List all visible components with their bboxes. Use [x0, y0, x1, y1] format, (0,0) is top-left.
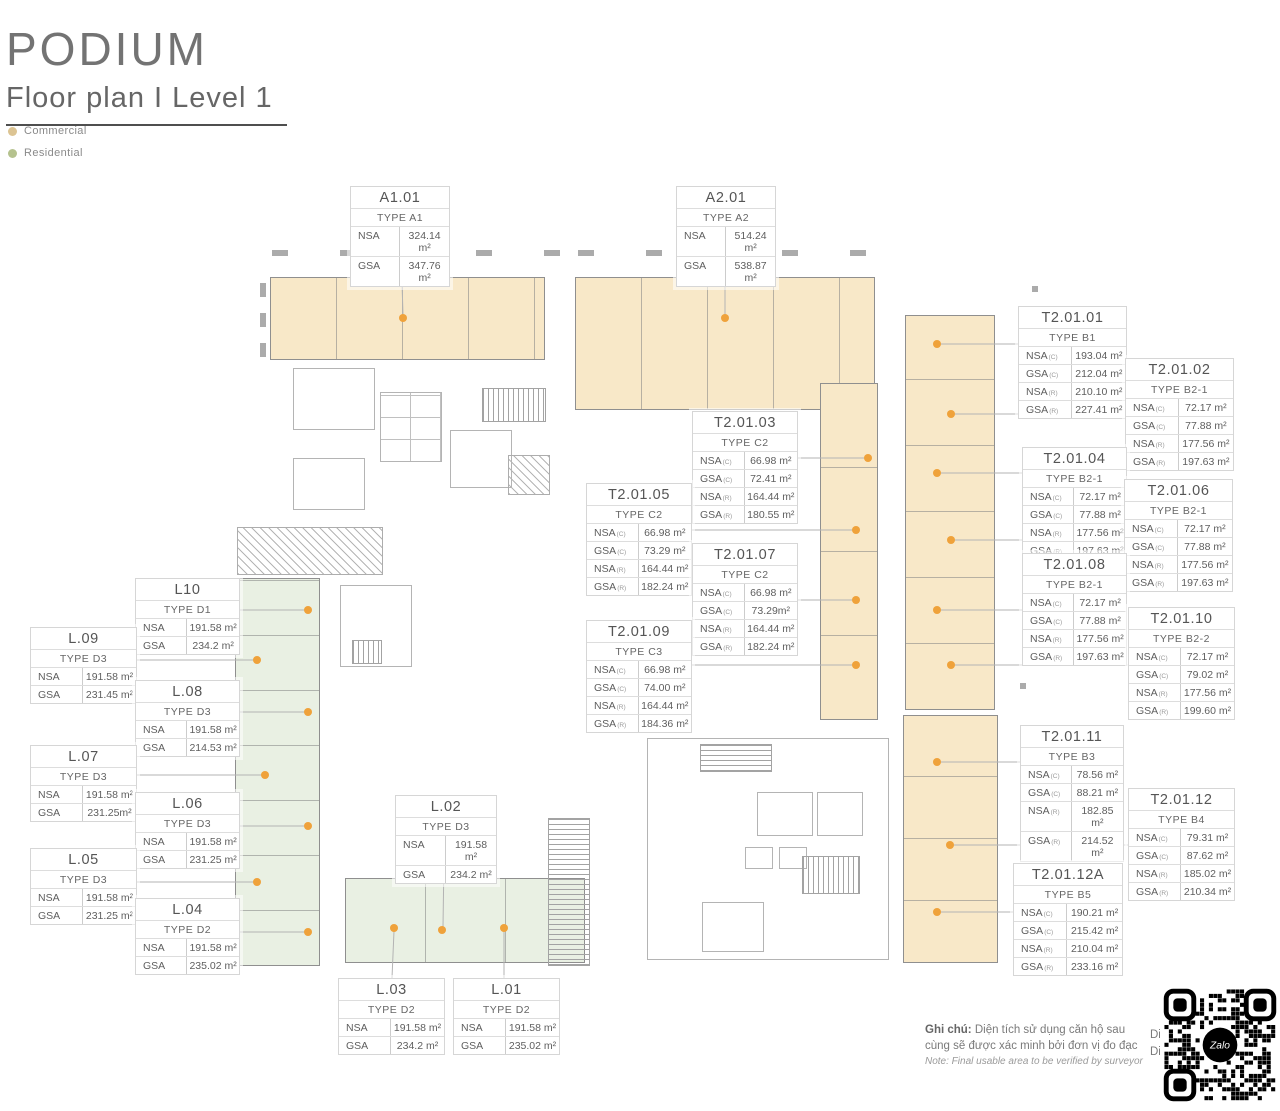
area-value: 227.41 m² — [1072, 401, 1126, 418]
area-value: 66.98 m² — [745, 584, 797, 601]
area-value: 177.56 m² — [1178, 556, 1232, 573]
legend-label: Commercial — [24, 125, 87, 137]
area-value: 66.98 m² — [639, 524, 691, 541]
area-label: NSA — [136, 721, 187, 738]
area-value: 191.58 m² — [506, 1019, 559, 1036]
area-row: GSA(R)182.24 m² — [693, 638, 797, 655]
area-scope: (R) — [1053, 655, 1062, 662]
page-subtitle: Floor plan I Level 1 — [6, 72, 287, 126]
area-scope: (C) — [1159, 655, 1168, 662]
qr-pattern: Zalo — [1160, 984, 1280, 1106]
unit-tables: A1.01TYPE A1NSA324.14 m²GSA347.76 m²A2.0… — [0, 0, 1280, 1106]
unit-table-T2.01.05: T2.01.05TYPE C2NSA(C)66.98 m²GSA(C)73.29… — [586, 483, 692, 596]
area-scope: (C) — [1053, 495, 1062, 502]
area-label: GSA(C) — [693, 602, 745, 619]
area-value: 164.44 m² — [745, 620, 797, 637]
area-scope: (R) — [723, 513, 732, 520]
area-scope: (C) — [617, 668, 626, 675]
area-label: NSA(R) — [1021, 802, 1072, 831]
area-value: 231.25 m² — [83, 907, 136, 924]
area-row: GSA235.02 m² — [136, 957, 239, 974]
area-value: 191.58 m² — [83, 889, 136, 906]
area-scope: (R) — [1159, 691, 1168, 698]
area-scope: (C) — [1044, 911, 1053, 918]
area-row: GSA(R)214.52 m² — [1021, 832, 1123, 861]
area-value: 77.88 m² — [1178, 538, 1232, 555]
area-label: GSA(R) — [1014, 958, 1067, 975]
area-row: NSA(R)164.44 m² — [693, 620, 797, 638]
area-value: 210.04 m² — [1067, 940, 1122, 957]
area-row: NSA(C)78.56 m² — [1021, 766, 1123, 784]
area-scope: (R) — [1044, 947, 1053, 954]
area-row: NSA(C)72.17 m² — [1126, 399, 1233, 417]
area-value: 72.17 m² — [1181, 648, 1234, 665]
area-value: 79.02 m² — [1181, 666, 1234, 683]
unit-type: TYPE D2 — [339, 1001, 444, 1019]
unit-type: TYPE D3 — [31, 871, 136, 889]
area-scope: (C) — [1049, 372, 1058, 379]
area-label: NSA — [136, 833, 187, 850]
zalo-qr-code: Zalo — [1160, 984, 1280, 1106]
unit-table-T2.01.02: T2.01.02TYPE B2-1NSA(C)72.17 m²GSA(C)77.… — [1125, 358, 1234, 471]
area-label: NSA(C) — [693, 452, 745, 469]
area-label: GSA(C) — [1019, 365, 1072, 382]
area-value: 88.21 m² — [1072, 784, 1123, 801]
area-label: GSA — [351, 257, 400, 286]
area-row: NSA(C)72.17 m² — [1023, 488, 1126, 506]
area-row: GSA(C)77.88 m² — [1125, 538, 1232, 556]
area-scope: (R) — [1159, 890, 1168, 897]
unit-type: TYPE D3 — [31, 650, 136, 668]
area-value: 72.17 m² — [1074, 488, 1126, 505]
unit-id: T2.01.12A — [1014, 864, 1122, 886]
unit-id: A2.01 — [677, 187, 775, 209]
area-value: 73.29m² — [745, 602, 797, 619]
area-row: NSA(R)182.85 m² — [1021, 802, 1123, 832]
area-scope: (R) — [723, 627, 732, 634]
area-value: 212.04 m² — [1072, 365, 1126, 382]
area-label: NSA(C) — [587, 524, 639, 541]
area-value: 324.14 m² — [400, 227, 449, 256]
area-label: NSA(C) — [1129, 648, 1181, 665]
area-value: 191.58 m² — [446, 836, 496, 865]
unit-table-T2.01.07: T2.01.07TYPE C2NSA(C)66.98 m²GSA(C)73.29… — [692, 543, 798, 656]
area-label: GSA(C) — [693, 470, 745, 487]
area-row: NSA(C)66.98 m² — [587, 524, 691, 542]
area-row: GSA(C)212.04 m² — [1019, 365, 1126, 383]
area-label: NSA(R) — [693, 620, 745, 637]
area-label: NSA(R) — [587, 560, 639, 577]
area-scope: (C) — [1159, 836, 1168, 843]
unit-table-L.01: L.01TYPE D2NSA191.58 m²GSA235.02 m² — [453, 978, 560, 1055]
area-row: GSA(C)87.62 m² — [1129, 847, 1234, 865]
area-value: 184.36 m² — [639, 715, 691, 732]
footnote: Ghi chú: Diện tích sử dụng căn hộ sau cù… — [925, 1023, 1153, 1069]
area-value: 191.58 m² — [187, 619, 239, 636]
area-label: NSA(C) — [587, 661, 639, 678]
area-value: 191.58 m² — [83, 668, 136, 685]
page-title: PODIUM — [6, 26, 287, 72]
area-row: GSA214.53 m² — [136, 739, 239, 756]
area-scope: (C) — [617, 531, 626, 538]
area-row: GSA(C)74.00 m² — [587, 679, 691, 697]
area-label: NSA(R) — [1019, 383, 1072, 400]
unit-id: L.06 — [136, 793, 239, 815]
residential-dot-icon — [8, 149, 17, 158]
area-label: GSA(C) — [1125, 538, 1178, 555]
area-label: NSA — [454, 1019, 506, 1036]
unit-table-L10: L10TYPE D1NSA191.58 m²GSA234.2 m² — [135, 578, 240, 655]
area-scope: (R) — [1156, 460, 1165, 467]
area-scope: (C) — [1155, 527, 1164, 534]
unit-type: TYPE D3 — [136, 815, 239, 833]
area-label: NSA(R) — [1125, 556, 1178, 573]
unit-id: T2.01.08 — [1023, 554, 1126, 576]
area-row: GSA(R)199.60 m² — [1129, 702, 1234, 719]
area-row: GSA(R)197.63 m² — [1023, 648, 1126, 665]
unit-type: TYPE B4 — [1129, 811, 1234, 829]
area-row: NSA324.14 m² — [351, 227, 449, 257]
area-label: NSA(R) — [1023, 630, 1074, 647]
area-row: NSA191.58 m² — [339, 1019, 444, 1037]
area-value: 191.58 m² — [391, 1019, 444, 1036]
area-value: 180.55 m² — [745, 506, 797, 523]
area-value: 177.56 m² — [1074, 630, 1126, 647]
area-value: 214.53 m² — [187, 739, 239, 756]
area-row: NSA(R)177.56 m² — [1023, 630, 1126, 648]
area-scope: (C) — [723, 609, 732, 616]
area-row: GSA(R)197.63 m² — [1126, 453, 1233, 470]
unit-id: L10 — [136, 579, 239, 601]
area-label: GSA(R) — [1021, 832, 1072, 861]
area-row: GSA(R)210.34 m² — [1129, 883, 1234, 900]
unit-type: TYPE C3 — [587, 643, 691, 661]
area-value: 233.16 m² — [1067, 958, 1122, 975]
unit-id: L.08 — [136, 681, 239, 703]
unit-table-L.04: L.04TYPE D2NSA191.58 m²GSA235.02 m² — [135, 898, 240, 975]
area-value: 231.25m² — [83, 804, 136, 821]
unit-table-T2.01.12: T2.01.12TYPE B4NSA(C)79.31 m²GSA(C)87.62… — [1128, 788, 1235, 901]
area-value: 190.21 m² — [1067, 904, 1122, 921]
unit-id: L.03 — [339, 979, 444, 1001]
area-label: GSA — [31, 907, 83, 924]
area-value: 66.98 m² — [745, 452, 797, 469]
area-row: NSA191.58 m² — [136, 833, 239, 851]
area-value: 73.29 m² — [639, 542, 691, 559]
area-row: GSA231.25 m² — [31, 907, 136, 924]
area-value: 234.2 m² — [187, 637, 239, 654]
unit-type: TYPE D3 — [31, 768, 136, 786]
area-value: 72.17 m² — [1179, 399, 1233, 416]
area-row: NSA(C)190.21 m² — [1014, 904, 1122, 922]
area-row: NSA(R)210.04 m² — [1014, 940, 1122, 958]
area-row: NSA191.58 m² — [31, 889, 136, 907]
area-row: NSA(C)72.17 m² — [1125, 520, 1232, 538]
area-row: GSA(C)77.88 m² — [1023, 506, 1126, 524]
area-label: GSA(C) — [1126, 417, 1179, 434]
area-value: 182.24 m² — [639, 578, 691, 595]
area-value: 347.76 m² — [400, 257, 449, 286]
area-scope: (R) — [1049, 390, 1058, 397]
area-value: 191.58 m² — [187, 939, 239, 956]
area-value: 177.56 m² — [1074, 524, 1126, 541]
area-scope: (R) — [1159, 872, 1168, 879]
area-label: NSA(R) — [1023, 524, 1074, 541]
footnote-label: Ghi chú: — [925, 1024, 972, 1036]
area-scope: (R) — [1051, 809, 1060, 816]
area-row: NSA(R)177.56 m² — [1129, 684, 1234, 702]
area-scope: (C) — [1159, 673, 1168, 680]
area-value: 177.56 m² — [1181, 684, 1234, 701]
area-scope: (C) — [723, 459, 732, 466]
area-row: NSA(C)66.98 m² — [693, 584, 797, 602]
area-label: GSA(C) — [1129, 666, 1181, 683]
area-value: 214.52 m² — [1072, 832, 1123, 861]
area-row: NSA(R)164.44 m² — [587, 560, 691, 578]
area-scope: (R) — [723, 645, 732, 652]
area-row: GSA(R)197.63 m² — [1125, 574, 1232, 591]
area-label: NSA — [136, 619, 187, 636]
area-row: NSA191.58 m² — [136, 939, 239, 957]
area-row: GSA(C)72.41 m² — [693, 470, 797, 488]
area-label: GSA(R) — [1125, 574, 1178, 591]
area-scope: (R) — [1053, 531, 1062, 538]
area-label: GSA — [136, 637, 187, 654]
area-row: GSA347.76 m² — [351, 257, 449, 286]
unit-table-L.09: L.09TYPE D3NSA191.58 m²GSA231.45 m² — [30, 627, 137, 704]
unit-type: TYPE B5 — [1014, 886, 1122, 904]
area-label: GSA(C) — [1023, 506, 1074, 523]
area-row: NSA191.58 m² — [136, 619, 239, 637]
area-label: NSA(C) — [1023, 488, 1074, 505]
area-row: NSA(C)66.98 m² — [587, 661, 691, 679]
unit-type: TYPE D2 — [136, 921, 239, 939]
unit-type: TYPE B2-2 — [1129, 630, 1234, 648]
unit-id: T2.01.04 — [1023, 448, 1126, 470]
area-row: GSA234.2 m² — [339, 1037, 444, 1054]
area-scope: (C) — [723, 591, 732, 598]
area-label: GSA(R) — [1129, 702, 1181, 719]
area-scope: (C) — [1051, 773, 1060, 780]
unit-type: TYPE C2 — [693, 566, 797, 584]
area-value: 193.04 m² — [1072, 347, 1126, 364]
area-label: NSA(C) — [1014, 904, 1067, 921]
area-value: 185.02 m² — [1181, 865, 1234, 882]
area-row: NSA191.58 m² — [31, 786, 136, 804]
unit-table-L.07: L.07TYPE D3NSA191.58 m²GSA231.25m² — [30, 745, 137, 822]
area-label: GSA — [31, 804, 83, 821]
unit-id: T2.01.03 — [693, 412, 797, 434]
area-scope: (R) — [1044, 965, 1053, 972]
area-row: NSA(C)193.04 m² — [1019, 347, 1126, 365]
area-row: GSA(R)233.16 m² — [1014, 958, 1122, 975]
area-value: 191.58 m² — [187, 833, 239, 850]
area-row: GSA538.87 m² — [677, 257, 775, 286]
area-row: NSA(C)72.17 m² — [1129, 648, 1234, 666]
area-scope: (C) — [1159, 854, 1168, 861]
area-scope: (C) — [1156, 406, 1165, 413]
area-row: NSA(R)210.10 m² — [1019, 383, 1126, 401]
area-value: 66.98 m² — [639, 661, 691, 678]
area-label: GSA — [396, 866, 446, 883]
area-label: GSA(R) — [693, 506, 745, 523]
area-label: NSA — [31, 889, 83, 906]
unit-id: T2.01.09 — [587, 621, 691, 643]
area-label: GSA(C) — [1014, 922, 1067, 939]
area-label: NSA(C) — [1126, 399, 1179, 416]
area-label: NSA(R) — [1129, 865, 1181, 882]
area-label: NSA(R) — [1126, 435, 1179, 452]
area-label: NSA — [677, 227, 726, 256]
area-label: GSA — [677, 257, 726, 286]
unit-id: T2.01.05 — [587, 484, 691, 506]
legend-label: Residential — [24, 147, 83, 159]
area-row: GSA(C)77.88 m² — [1126, 417, 1233, 435]
unit-table-T2.01.08: T2.01.08TYPE B2-1NSA(C)72.17 m²GSA(C)77.… — [1022, 553, 1127, 666]
area-scope: (R) — [617, 585, 626, 592]
area-value: 191.58 m² — [187, 721, 239, 738]
unit-id: A1.01 — [351, 187, 449, 209]
unit-type: TYPE B2-1 — [1023, 576, 1126, 594]
area-label: NSA — [31, 786, 83, 803]
area-label: NSA — [136, 939, 187, 956]
area-scope: (C) — [723, 477, 732, 484]
unit-table-T2.01.10: T2.01.10TYPE B2-2NSA(C)72.17 m²GSA(C)79.… — [1128, 607, 1235, 720]
area-label: GSA(R) — [587, 715, 639, 732]
legend: Commercial Residential — [8, 125, 87, 169]
unit-type: TYPE A1 — [351, 209, 449, 227]
area-scope: (C) — [1049, 354, 1058, 361]
unit-id: T2.01.07 — [693, 544, 797, 566]
unit-type: TYPE D3 — [136, 703, 239, 721]
area-label: GSA(C) — [1023, 612, 1074, 629]
area-row: NSA191.58 m² — [31, 668, 136, 686]
area-value: 197.63 m² — [1179, 453, 1233, 470]
area-value: 231.25 m² — [187, 851, 239, 868]
area-value: 231.45 m² — [83, 686, 136, 703]
area-label: NSA(C) — [1129, 829, 1181, 846]
unit-table-T2.01.09: T2.01.09TYPE C3NSA(C)66.98 m²GSA(C)74.00… — [586, 620, 692, 733]
area-row: NSA(C)79.31 m² — [1129, 829, 1234, 847]
area-label: GSA(C) — [1021, 784, 1072, 801]
area-label: NSA(C) — [1019, 347, 1072, 364]
area-value: 164.44 m² — [639, 560, 691, 577]
area-row: NSA(R)177.56 m² — [1126, 435, 1233, 453]
area-value: 74.00 m² — [639, 679, 691, 696]
area-row: GSA(R)227.41 m² — [1019, 401, 1126, 418]
footnote-en: Note: Final usable area to be verified b… — [925, 1055, 1153, 1069]
unit-type: TYPE B2-1 — [1126, 381, 1233, 399]
area-value: 77.88 m² — [1179, 417, 1233, 434]
area-scope: (C) — [1053, 513, 1062, 520]
area-value: 182.24 m² — [745, 638, 797, 655]
zalo-logo: Zalo — [1209, 1041, 1230, 1052]
unit-table-T2.01.11: T2.01.11TYPE B3NSA(C)78.56 m²GSA(C)88.21… — [1020, 725, 1124, 862]
area-value: 235.02 m² — [506, 1037, 559, 1054]
area-row: NSA(R)164.44 m² — [693, 488, 797, 506]
area-row: GSA(R)180.55 m² — [693, 506, 797, 523]
area-scope: (R) — [1155, 581, 1164, 588]
area-scope: (R) — [617, 567, 626, 574]
area-value: 197.63 m² — [1178, 574, 1232, 591]
area-value: 164.44 m² — [639, 697, 691, 714]
area-value: 538.87 m² — [726, 257, 775, 286]
unit-id: L.09 — [31, 628, 136, 650]
area-row: GSA(C)73.29 m² — [587, 542, 691, 560]
area-value: 514.24 m² — [726, 227, 775, 256]
area-row: GSA(C)215.42 m² — [1014, 922, 1122, 940]
unit-table-T2.01.04: T2.01.04TYPE B2-1NSA(C)72.17 m²GSA(C)77.… — [1022, 447, 1127, 560]
area-row: GSA231.45 m² — [31, 686, 136, 703]
area-label: GSA(R) — [587, 578, 639, 595]
unit-type: TYPE B2-1 — [1125, 502, 1232, 520]
unit-type: TYPE A2 — [677, 209, 775, 227]
unit-id: T2.01.11 — [1021, 726, 1123, 748]
area-scope: (C) — [1155, 545, 1164, 552]
area-row: GSA(C)73.29m² — [693, 602, 797, 620]
area-row: GSA(C)88.21 m² — [1021, 784, 1123, 802]
area-label: GSA(C) — [587, 542, 639, 559]
unit-table-L.02: L.02TYPE D3NSA191.58 m²GSA234.2 m² — [395, 795, 497, 884]
area-label: NSA(C) — [1125, 520, 1178, 537]
unit-type: TYPE B3 — [1021, 748, 1123, 766]
unit-id: L.01 — [454, 979, 559, 1001]
unit-table-T2.01.01: T2.01.01TYPE B1NSA(C)193.04 m²GSA(C)212.… — [1018, 306, 1127, 419]
unit-id: L.05 — [31, 849, 136, 871]
unit-type: TYPE C2 — [587, 506, 691, 524]
area-row: NSA(C)66.98 m² — [693, 452, 797, 470]
area-value: 78.56 m² — [1072, 766, 1123, 783]
page-header: PODIUM Floor plan I Level 1 — [6, 26, 287, 126]
legend-item-commercial: Commercial — [8, 125, 87, 137]
footnote-vi: Ghi chú: Diện tích sử dụng căn hộ sau cù… — [925, 1023, 1153, 1054]
area-row: NSA(R)185.02 m² — [1129, 865, 1234, 883]
area-value: 87.62 m² — [1181, 847, 1234, 864]
area-value: 77.88 m² — [1074, 612, 1126, 629]
unit-table-T2.01.12A: T2.01.12ATYPE B5NSA(C)190.21 m²GSA(C)215… — [1013, 863, 1123, 976]
unit-id: T2.01.01 — [1019, 307, 1126, 329]
area-label: GSA(C) — [1129, 847, 1181, 864]
unit-table-L.05: L.05TYPE D3NSA191.58 m²GSA231.25 m² — [30, 848, 137, 925]
unit-table-L.06: L.06TYPE D3NSA191.58 m²GSA231.25 m² — [135, 792, 240, 869]
area-label: GSA — [454, 1037, 506, 1054]
area-row: NSA(C)72.17 m² — [1023, 594, 1126, 612]
area-scope: (R) — [723, 495, 732, 502]
area-label: NSA — [351, 227, 400, 256]
area-row: NSA(R)164.44 m² — [587, 697, 691, 715]
unit-type: TYPE B1 — [1019, 329, 1126, 347]
area-scope: (R) — [1051, 839, 1060, 846]
area-value: 72.17 m² — [1074, 594, 1126, 611]
area-row: GSA(C)79.02 m² — [1129, 666, 1234, 684]
unit-table-A1.01: A1.01TYPE A1NSA324.14 m²GSA347.76 m² — [350, 186, 450, 287]
area-row: GSA234.2 m² — [396, 866, 496, 883]
area-label: GSA(R) — [1019, 401, 1072, 418]
area-scope: (C) — [1051, 791, 1060, 798]
area-label: GSA — [31, 686, 83, 703]
area-label: NSA(C) — [693, 584, 745, 601]
area-row: GSA231.25m² — [31, 804, 136, 821]
unit-id: T2.01.06 — [1125, 480, 1232, 502]
area-label: GSA(C) — [587, 679, 639, 696]
area-value: 210.10 m² — [1072, 383, 1126, 400]
area-scope: (C) — [1156, 424, 1165, 431]
area-scope: (R) — [1053, 637, 1062, 644]
area-label: NSA(R) — [1129, 684, 1181, 701]
unit-id: T2.01.02 — [1126, 359, 1233, 381]
area-label: GSA(R) — [1129, 883, 1181, 900]
area-row: NSA191.58 m² — [396, 836, 496, 866]
